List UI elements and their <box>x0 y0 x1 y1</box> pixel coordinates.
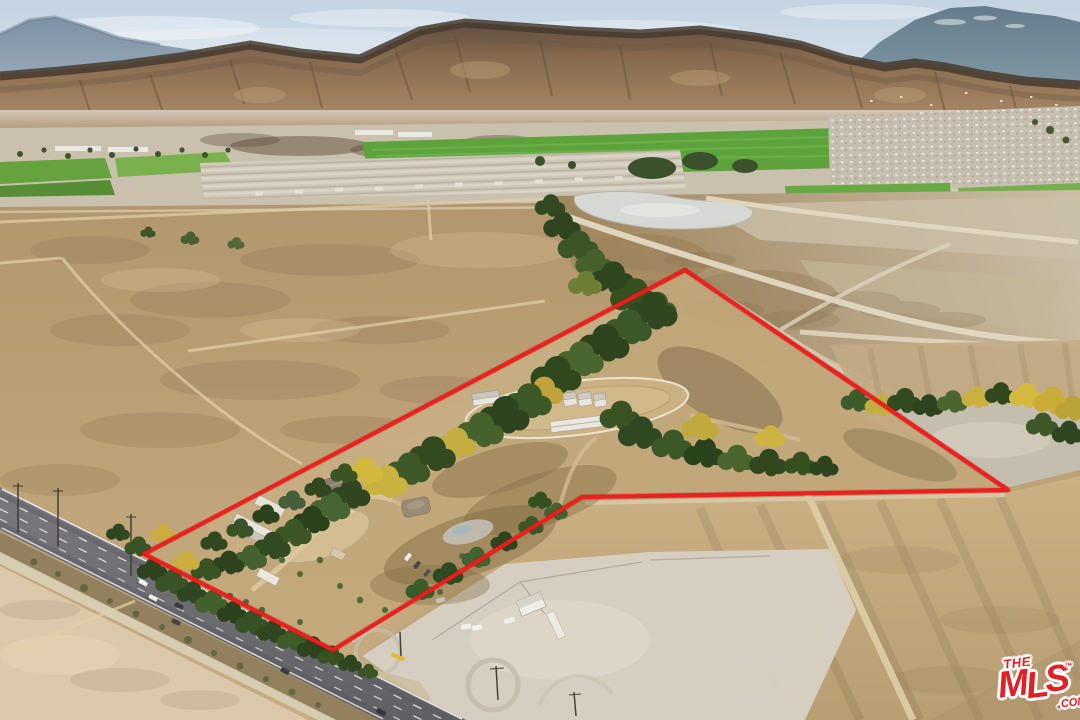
aerial-listing-photo: THE MLS ™ .COM <box>0 0 1080 720</box>
mls-watermark: THE MLS ™ .COM <box>993 648 1080 720</box>
logo-mls-text: MLS <box>996 661 1069 702</box>
logo-com-text: .COM <box>1057 695 1080 710</box>
pond-highlight <box>620 203 700 217</box>
aerial-photo-canvas <box>0 0 1080 720</box>
town-right <box>828 106 1080 186</box>
logo-trademark: ™ <box>1065 663 1073 671</box>
